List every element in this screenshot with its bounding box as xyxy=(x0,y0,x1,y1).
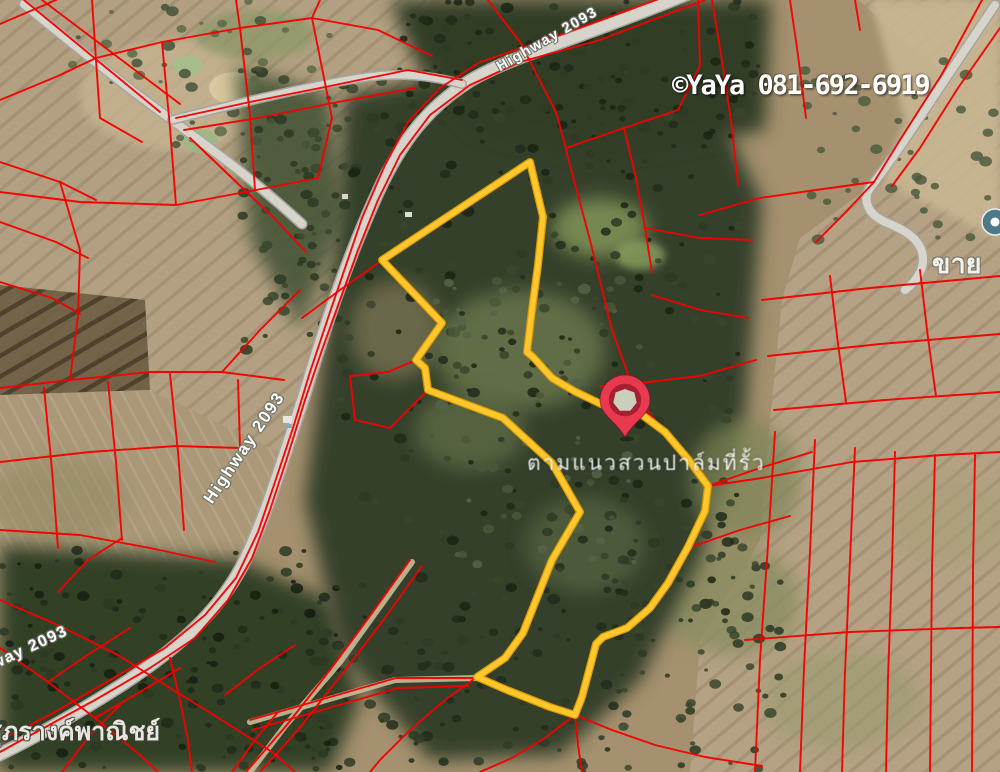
tree-blob xyxy=(627,549,636,556)
tree-blob xyxy=(482,440,488,444)
tree-blob xyxy=(71,546,82,555)
tree-blob xyxy=(529,454,534,458)
tree-blob xyxy=(324,740,332,746)
tree-blob xyxy=(380,112,389,119)
tree-blob xyxy=(672,280,678,284)
tree-blob xyxy=(701,530,712,539)
tree-blob xyxy=(90,663,95,667)
tree-blob xyxy=(345,334,353,341)
tree-blob xyxy=(651,639,656,643)
tree-blob xyxy=(499,347,505,351)
tree-blob xyxy=(631,560,636,564)
tree-blob xyxy=(622,710,631,717)
tree-blob xyxy=(410,13,416,18)
tree-blob xyxy=(90,742,102,751)
olive-field xyxy=(760,650,920,750)
tree-blob xyxy=(284,129,294,137)
tree-blob xyxy=(513,727,519,732)
tree-blob xyxy=(398,210,403,214)
tree-blob xyxy=(681,499,692,508)
tree-blob xyxy=(179,744,187,750)
tree-blob xyxy=(599,323,603,326)
map-canvas[interactable]: Highway 2093 Highway 2093 Highway 2093 ต… xyxy=(0,0,1000,772)
tree-blob xyxy=(196,764,204,770)
tree-blob xyxy=(984,195,991,201)
tree-blob xyxy=(277,136,284,141)
tree-blob xyxy=(295,732,307,742)
tree-blob xyxy=(476,126,484,133)
tree-blob xyxy=(278,75,289,84)
tree-blob xyxy=(653,583,659,588)
tree-blob xyxy=(159,634,167,640)
tree-blob xyxy=(489,673,493,677)
tree-blob xyxy=(574,348,580,353)
tree-blob xyxy=(226,734,234,740)
tree-blob xyxy=(956,106,966,114)
tree-blob xyxy=(44,633,57,643)
tree-blob xyxy=(774,674,783,681)
tree-blob xyxy=(307,198,319,207)
tree-blob xyxy=(606,286,613,292)
tree-blob xyxy=(657,131,663,136)
tree-blob xyxy=(306,610,315,617)
tree-blob xyxy=(359,583,366,589)
tree-blob xyxy=(557,748,562,752)
tree-blob xyxy=(691,479,698,484)
tree-blob xyxy=(671,144,676,148)
tree-blob xyxy=(139,608,146,614)
tree-blob xyxy=(263,297,274,305)
tree-blob xyxy=(374,127,381,133)
tree-blob xyxy=(179,69,191,79)
tree-blob xyxy=(764,708,776,718)
tree-blob xyxy=(76,35,81,39)
tree-blob xyxy=(726,499,735,506)
tree-blob xyxy=(583,84,592,91)
tree-blob xyxy=(885,183,897,193)
tree-blob xyxy=(468,110,479,119)
tree-blob xyxy=(610,251,620,259)
tree-blob xyxy=(409,758,415,763)
tree-blob xyxy=(514,657,519,661)
tree-blob xyxy=(971,151,983,161)
tree-blob xyxy=(601,680,613,689)
tree-blob xyxy=(576,49,586,57)
tree-blob xyxy=(344,116,352,122)
tree-blob xyxy=(615,78,622,84)
tree-blob xyxy=(473,91,481,97)
tree-blob xyxy=(62,592,70,598)
tree-blob xyxy=(117,599,123,604)
tree-blob xyxy=(632,480,643,489)
tree-blob xyxy=(480,635,485,639)
tree-blob xyxy=(263,334,268,338)
tree-blob xyxy=(344,320,350,325)
tree-blob xyxy=(413,734,425,743)
tree-blob xyxy=(199,571,204,575)
tree-blob xyxy=(405,641,409,644)
tree-blob xyxy=(199,22,203,25)
poi-marker[interactable] xyxy=(982,209,1000,235)
tree-blob xyxy=(172,141,181,148)
tree-blob xyxy=(312,232,317,236)
tree-blob xyxy=(894,118,902,124)
tree-blob xyxy=(688,174,694,179)
tree-blob xyxy=(575,481,583,487)
tree-blob xyxy=(463,332,472,339)
tree-blob xyxy=(817,147,825,154)
tree-blob xyxy=(503,741,513,749)
tree-blob xyxy=(250,591,261,600)
tree-blob xyxy=(413,696,419,701)
tree-blob xyxy=(296,563,303,568)
tree-blob xyxy=(389,186,394,190)
tree-blob xyxy=(605,525,613,531)
tree-blob xyxy=(447,536,459,546)
tree-blob xyxy=(492,108,499,114)
tree-blob xyxy=(438,758,448,766)
tree-blob xyxy=(592,470,603,479)
tree-blob xyxy=(380,242,387,248)
tree-blob xyxy=(177,616,186,624)
tree-blob xyxy=(348,170,358,178)
tree-blob xyxy=(254,126,263,133)
tree-blob xyxy=(434,34,446,44)
tree-blob xyxy=(858,96,871,106)
tree-blob xyxy=(212,684,224,693)
tree-blob xyxy=(750,746,759,753)
tree-blob xyxy=(683,525,690,531)
tree-blob xyxy=(290,161,297,167)
tree-blob xyxy=(756,65,760,68)
pin-shadow xyxy=(620,437,634,442)
tree-blob xyxy=(690,741,695,745)
tree-blob xyxy=(536,392,545,399)
tree-blob xyxy=(367,351,374,357)
tree-blob xyxy=(811,78,822,87)
tree-blob xyxy=(55,559,60,563)
tree-blob xyxy=(911,189,920,196)
tree-blob xyxy=(733,703,744,712)
tree-blob xyxy=(654,108,659,112)
tree-blob xyxy=(177,25,187,33)
tree-blob xyxy=(608,476,619,485)
tree-blob xyxy=(325,722,334,729)
tree-blob xyxy=(618,63,628,71)
tree-blob xyxy=(468,42,472,45)
tree-blob xyxy=(699,223,708,230)
tree-blob xyxy=(701,144,707,149)
tree-blob xyxy=(722,618,728,623)
tree-blob xyxy=(331,192,339,199)
tree-blob xyxy=(553,297,557,300)
tree-blob xyxy=(239,762,249,770)
tree-blob xyxy=(422,638,433,647)
tree-blob xyxy=(233,600,240,605)
tree-blob xyxy=(608,702,619,711)
tree-blob xyxy=(26,640,32,645)
tree-blob xyxy=(620,496,629,503)
tree-blob xyxy=(726,363,730,366)
tree-blob xyxy=(709,129,716,135)
tree-blob xyxy=(549,62,560,71)
tree-blob xyxy=(635,626,644,633)
tree-blob xyxy=(679,29,687,35)
tree-blob xyxy=(557,567,563,572)
tree-blob xyxy=(717,522,726,529)
tree-blob xyxy=(480,140,485,144)
tree-blob xyxy=(706,554,716,562)
tree-blob xyxy=(571,457,577,462)
tree-blob xyxy=(473,757,484,766)
tree-blob xyxy=(611,75,616,79)
tree-blob xyxy=(364,699,376,708)
tree-blob xyxy=(557,282,562,286)
tree-blob xyxy=(321,628,333,637)
tree-blob xyxy=(217,699,225,706)
tree-blob xyxy=(448,327,461,337)
tree-blob xyxy=(988,109,999,117)
tree-blob xyxy=(461,436,471,444)
tree-blob xyxy=(513,411,520,417)
tree-blob xyxy=(501,514,507,519)
tree-blob xyxy=(716,113,725,120)
tree-blob xyxy=(620,673,624,676)
tree-blob xyxy=(40,600,48,606)
tree-blob xyxy=(178,608,184,613)
tree-blob xyxy=(382,665,394,675)
tree-blob xyxy=(512,512,522,520)
tree-blob xyxy=(505,468,511,473)
tree-blob xyxy=(716,293,721,297)
tree-blob xyxy=(56,748,68,758)
tree-blob xyxy=(34,591,44,599)
tree-blob xyxy=(501,3,514,13)
building-roof xyxy=(286,424,292,428)
tree-blob xyxy=(155,584,166,593)
tree-blob xyxy=(601,553,609,560)
building xyxy=(283,416,292,423)
tree-blob xyxy=(626,173,635,180)
tree-blob xyxy=(281,568,292,577)
tree-blob xyxy=(686,581,695,588)
tree-blob xyxy=(432,298,440,304)
tree-blob xyxy=(190,120,196,125)
tree-blob xyxy=(600,122,605,126)
tree-blob xyxy=(707,576,716,583)
tree-blob xyxy=(760,562,770,570)
tree-blob xyxy=(359,492,372,502)
tree-blob xyxy=(499,351,509,359)
tree-blob xyxy=(201,595,206,599)
tree-blob xyxy=(571,246,579,253)
tree-blob xyxy=(619,116,626,121)
tree-blob xyxy=(262,241,273,250)
tree-blob xyxy=(281,293,289,300)
tree-blob xyxy=(337,397,344,403)
tree-blob xyxy=(748,14,757,21)
tree-blob xyxy=(578,536,588,544)
tree-blob xyxy=(209,648,217,654)
tree-blob xyxy=(598,76,606,82)
tree-blob xyxy=(407,103,416,111)
tree-blob xyxy=(622,688,628,693)
tree-blob xyxy=(337,355,348,364)
tree-blob xyxy=(326,33,333,38)
tree-blob xyxy=(487,463,499,472)
tree-blob xyxy=(549,3,559,11)
tree-blob xyxy=(642,159,648,164)
tree-blob xyxy=(561,609,566,613)
tree-blob xyxy=(319,593,330,602)
building xyxy=(342,194,348,199)
tree-blob xyxy=(408,449,413,453)
tree-blob xyxy=(592,307,596,310)
tree-blob xyxy=(542,176,553,185)
tree-blob xyxy=(213,633,225,642)
tree-blob xyxy=(669,121,679,129)
tree-blob xyxy=(475,30,482,36)
tree-blob xyxy=(712,601,719,607)
tree-blob xyxy=(307,128,319,138)
tree-blob xyxy=(730,110,734,113)
tree-blob xyxy=(536,403,542,408)
tree-blob xyxy=(870,144,882,154)
tree-blob xyxy=(733,639,744,648)
tree-blob xyxy=(433,65,438,69)
tree-blob xyxy=(512,286,521,293)
tree-blob xyxy=(557,457,564,462)
tree-blob xyxy=(676,577,683,583)
tree-blob xyxy=(564,64,574,72)
tree-blob xyxy=(306,630,313,636)
tree-blob xyxy=(596,537,606,545)
tree-blob xyxy=(547,594,560,604)
tree-blob xyxy=(315,136,323,142)
tree-blob xyxy=(433,663,443,671)
tree-blob xyxy=(258,58,268,66)
tree-blob xyxy=(336,238,341,242)
tree-blob xyxy=(187,687,195,693)
tree-blob xyxy=(291,620,297,625)
tree-blob xyxy=(463,14,472,21)
tree-blob xyxy=(482,335,488,340)
tree-blob xyxy=(272,609,279,615)
tree-blob xyxy=(442,45,451,52)
tree-blob xyxy=(585,163,593,170)
tree-blob xyxy=(634,285,643,292)
tree-blob xyxy=(333,124,343,132)
tree-blob xyxy=(721,416,731,424)
tree-blob xyxy=(250,76,260,84)
tree-blob xyxy=(441,24,452,33)
tree-blob xyxy=(429,434,434,438)
tree-blob xyxy=(618,722,628,730)
tree-blob xyxy=(742,591,753,600)
tree-blob xyxy=(372,499,379,505)
tree-blob xyxy=(214,126,227,136)
tree-blob xyxy=(627,211,636,218)
tree-blob xyxy=(275,115,287,125)
tree-blob xyxy=(189,676,198,684)
tree-blob xyxy=(741,60,750,68)
tree-blob xyxy=(774,642,786,651)
tree-blob xyxy=(690,315,699,322)
tree-blob xyxy=(661,77,669,83)
tree-blob xyxy=(508,339,516,346)
tree-blob xyxy=(300,190,311,199)
tree-blob xyxy=(539,304,550,313)
tree-blob xyxy=(559,335,565,340)
tree-blob xyxy=(841,75,849,81)
tree-blob xyxy=(312,766,319,772)
tree-blob xyxy=(394,433,407,443)
tree-blob xyxy=(476,463,487,472)
tree-blob xyxy=(576,436,581,440)
tree-blob xyxy=(400,454,410,462)
tree-blob xyxy=(568,337,572,340)
tree-blob xyxy=(385,138,396,147)
tree-blob xyxy=(722,537,734,547)
tree-blob xyxy=(458,616,466,622)
tree-blob xyxy=(217,20,227,28)
tree-blob xyxy=(259,616,264,620)
tree-blob xyxy=(419,15,429,23)
tree-blob xyxy=(442,650,448,655)
tree-blob xyxy=(599,329,609,337)
tree-blob xyxy=(506,503,515,510)
tree-blob xyxy=(267,118,275,124)
tree-blob xyxy=(603,587,611,593)
tree-blob xyxy=(614,276,625,285)
tree-blob xyxy=(307,225,315,231)
tree-blob xyxy=(309,656,321,666)
tree-blob xyxy=(279,546,292,556)
tree-blob xyxy=(40,650,49,657)
tree-blob xyxy=(721,608,730,615)
tree-blob xyxy=(468,388,480,398)
tree-blob xyxy=(633,539,638,543)
tree-blob xyxy=(626,479,631,483)
tree-blob xyxy=(295,169,302,174)
tree-blob xyxy=(567,638,571,641)
tree-blob xyxy=(729,226,735,231)
tree-blob xyxy=(101,40,112,49)
tree-blob xyxy=(621,202,629,208)
tree-blob xyxy=(238,68,244,73)
tree-blob xyxy=(34,563,41,569)
tree-blob xyxy=(711,464,717,469)
tree-blob xyxy=(612,578,619,583)
tree-blob xyxy=(326,748,331,752)
tree-blob xyxy=(648,538,661,548)
tree-blob xyxy=(715,82,722,87)
tree-blob xyxy=(635,274,644,281)
tree-blob xyxy=(17,562,21,565)
tree-blob xyxy=(648,529,660,539)
tree-blob xyxy=(555,104,563,111)
tree-blob xyxy=(502,485,513,494)
tree-blob xyxy=(621,580,630,587)
tree-blob xyxy=(78,733,83,737)
tree-blob xyxy=(332,103,338,107)
tree-blob xyxy=(639,67,650,75)
tree-blob xyxy=(459,311,465,316)
tree-blob xyxy=(559,371,564,375)
tree-blob xyxy=(735,352,740,356)
tree-blob xyxy=(685,707,695,715)
tree-blob xyxy=(515,144,526,153)
